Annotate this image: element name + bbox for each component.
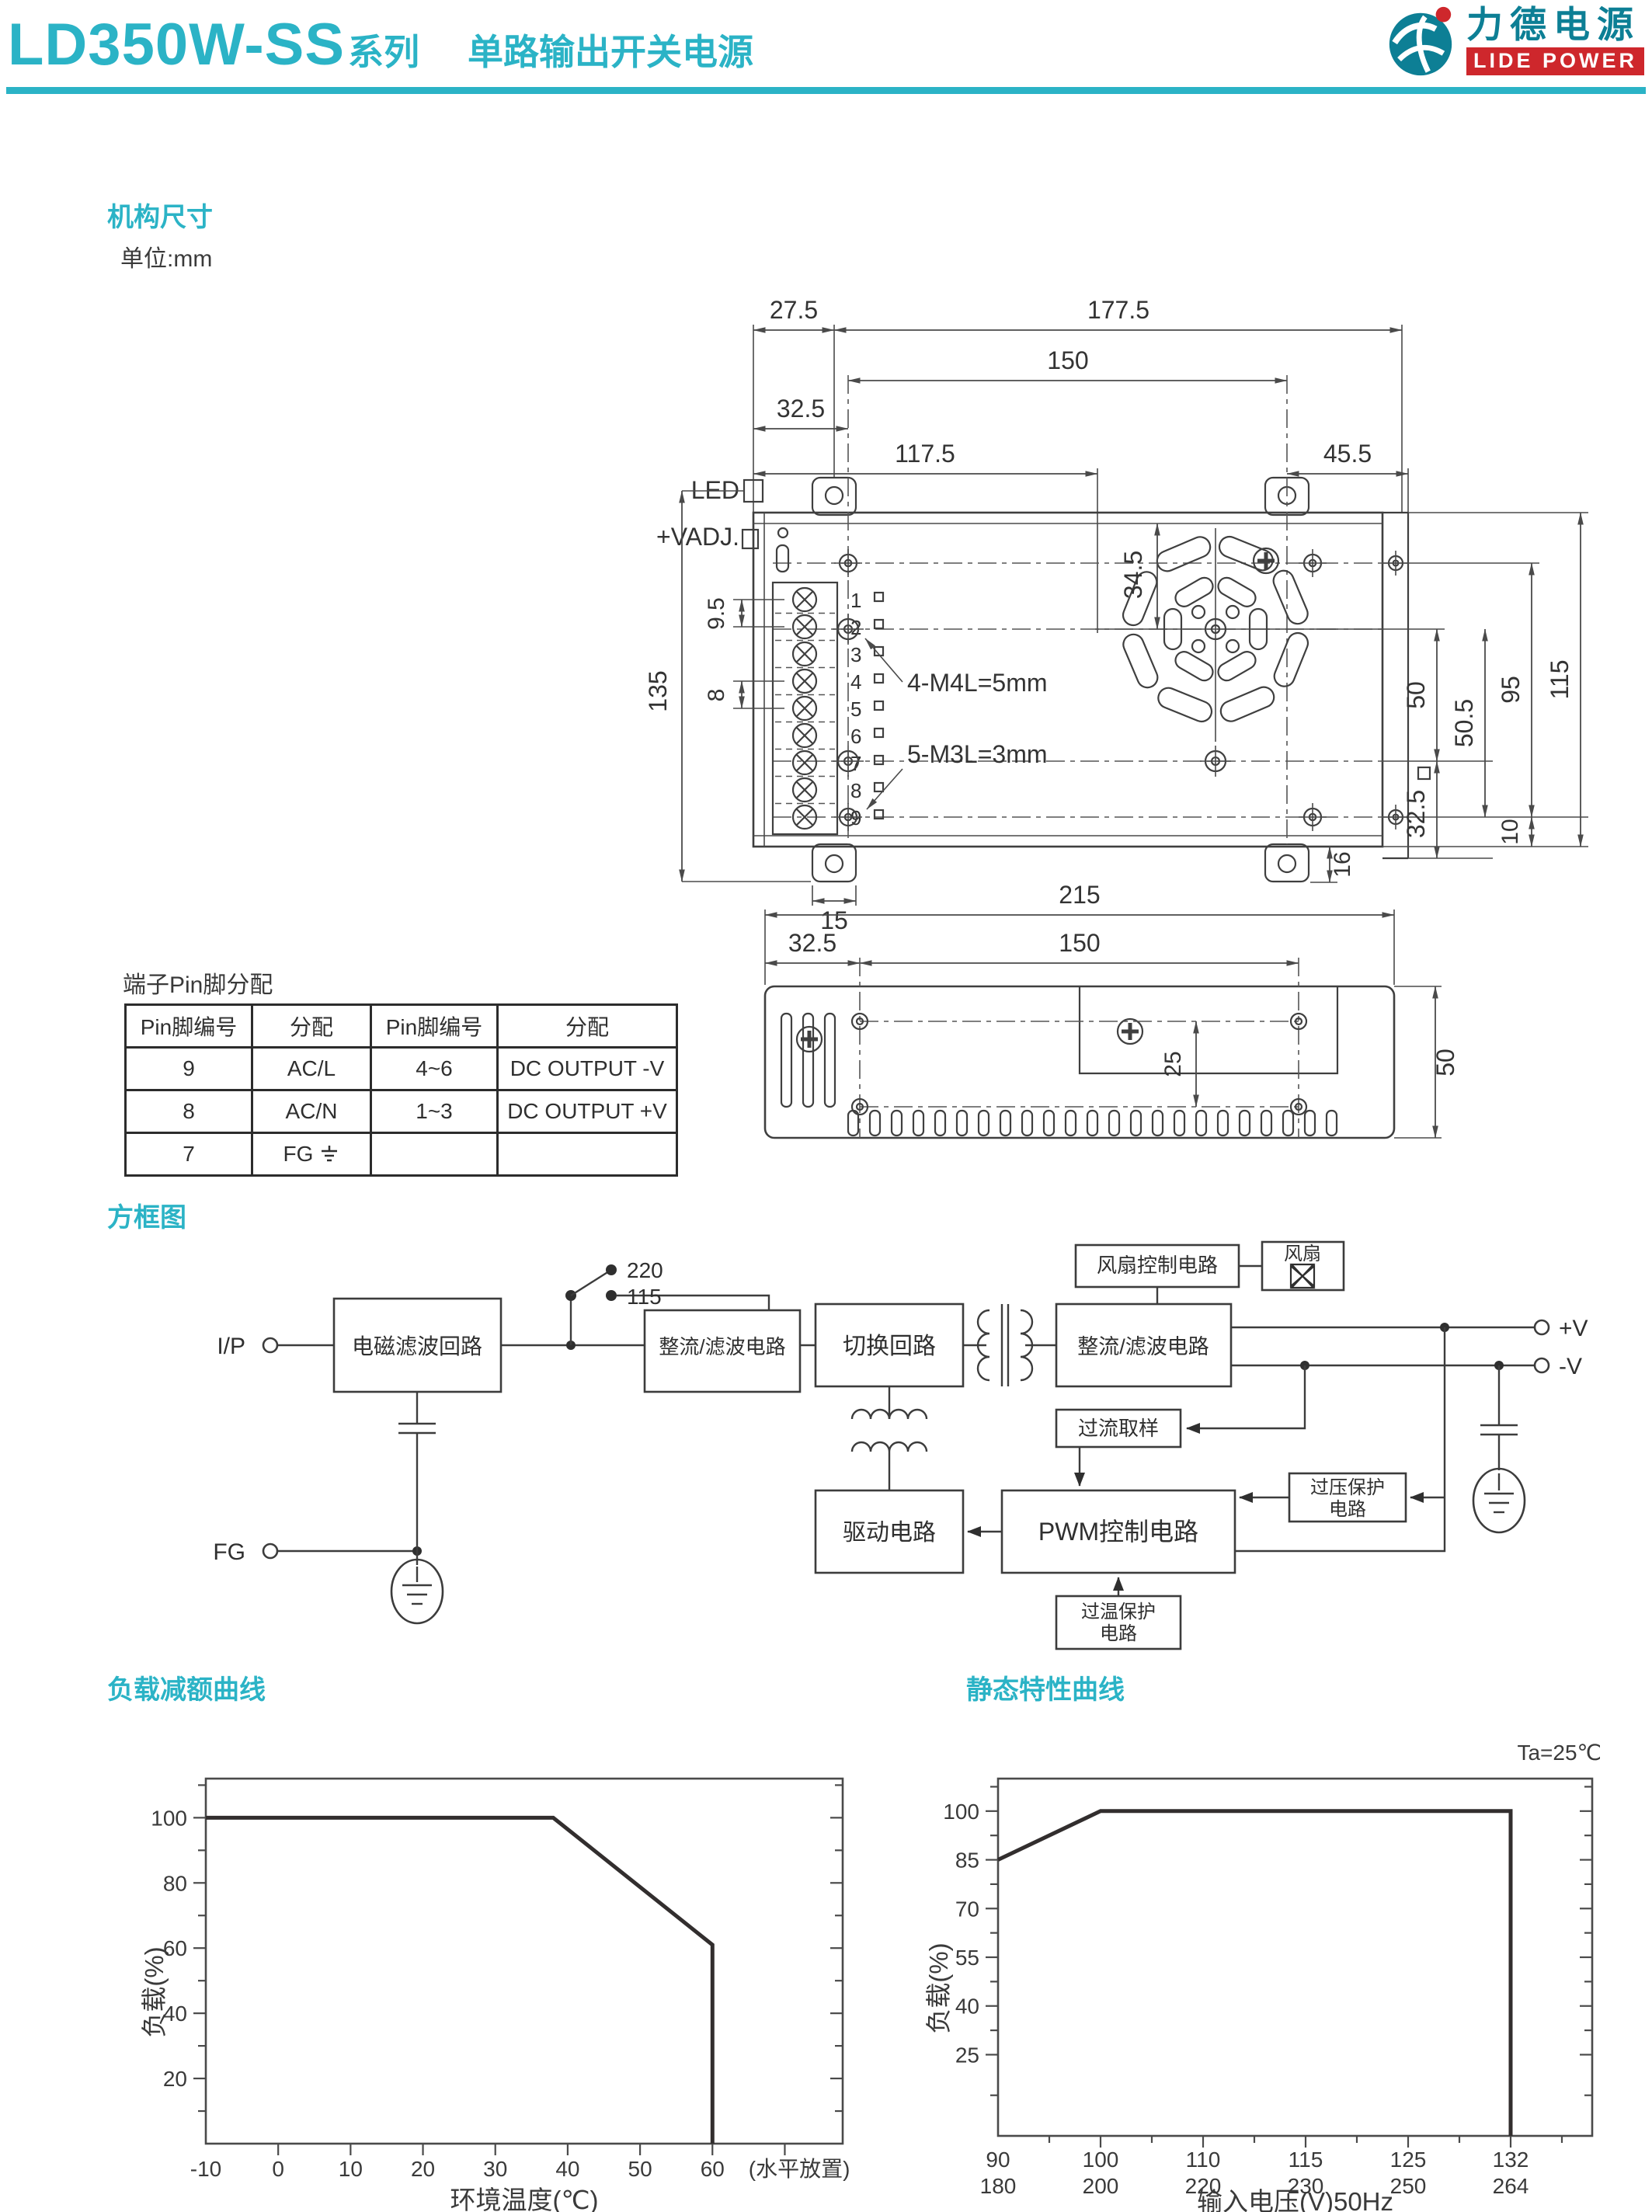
svg-text:60: 60 [701, 2157, 725, 2181]
m4-note: 4-M4L=5mm [907, 669, 1048, 697]
dim-135: 135 [644, 670, 672, 711]
dim-10: 10 [1497, 819, 1523, 844]
svg-text:1: 1 [850, 589, 861, 612]
cell: 7 [126, 1133, 252, 1176]
table-row: 9 AC/L 4~6 DC OUTPUT -V [126, 1048, 677, 1090]
input-terminal [263, 1338, 277, 1352]
dim-27-5: 27.5 [770, 296, 818, 324]
svg-text:70: 70 [955, 1897, 979, 1921]
bottom-vent-slots [848, 1111, 1337, 1136]
dim-45-5: 45.5 [1323, 440, 1372, 468]
switching-label: 切换回路 [843, 1334, 936, 1359]
datasheet-page: LD350W-SS 系列 单路输出开关电源 力德电源 LIDE POWER 机构… [0, 0, 1652, 2212]
svg-text:132: 132 [1493, 2148, 1529, 2172]
voltage-select-switch: 220 115 [565, 1258, 769, 1345]
cell: 4~6 [371, 1048, 498, 1090]
logo-english-name: LIDE POWER [1466, 47, 1644, 75]
svg-text:40: 40 [555, 2157, 579, 2181]
svg-text:5: 5 [850, 697, 861, 721]
svg-text:3: 3 [850, 643, 861, 666]
block-diagram: I/P 电磁滤波回路 220 115 整流/滤波电路 切换回路 [179, 1240, 1639, 1652]
header-assign-2: 分配 [498, 1005, 677, 1048]
ovp-label-1: 过压保护 [1310, 1477, 1385, 1498]
svg-text:40: 40 [955, 1995, 979, 2019]
svg-text:(水平放置): (水平放置) [749, 2157, 850, 2181]
svg-text:负载(%): 负载(%) [140, 1946, 169, 2037]
fg-label: FG [213, 1539, 245, 1565]
pwm-label: PWM控制电路 [1038, 1518, 1198, 1546]
header-pin-no: Pin脚编号 [126, 1005, 252, 1048]
vminus-label: -V [1559, 1354, 1582, 1379]
dim-32-5: 32.5 [777, 395, 825, 423]
vplus-label: +V [1559, 1316, 1588, 1341]
brand-logo: 力德电源 LIDE POWER [1382, 3, 1644, 79]
square-hole-symbol [1418, 767, 1430, 779]
logo-chinese-name: 力德电源 [1466, 7, 1640, 45]
fg-capacitor [398, 1392, 436, 1551]
svg-text:负载(%): 负载(%) [924, 1942, 953, 2033]
dim-16: 16 [1330, 851, 1355, 877]
section-title-static: 静态特性曲线 [966, 1668, 1125, 1706]
vadj-pot [743, 530, 758, 548]
earth-ground-icon [319, 1145, 339, 1163]
dim-25: 25 [1160, 1051, 1186, 1076]
cell: 9 [126, 1048, 252, 1090]
fan-label: 风扇 [1284, 1243, 1321, 1264]
led-label: LED [691, 476, 739, 504]
drive-label: 驱动电路 [843, 1520, 936, 1546]
svg-text:115: 115 [1289, 2148, 1323, 2172]
dim-32-5-square: 32.5 [1402, 790, 1430, 838]
drive-coils [852, 1386, 927, 1490]
cell: 1~3 [371, 1090, 498, 1133]
derating-curve-chart: 20406080100-100102030405060环境温度(℃)负载(%)(… [140, 1709, 878, 2212]
m3-note: 5-M3L=3mm [907, 740, 1048, 768]
svg-text:输入电压(V)50Hz: 输入电压(V)50Hz [1197, 2187, 1393, 2212]
unit-note: 单位:mm [120, 239, 212, 273]
dim-177-5: 177.5 [1087, 296, 1149, 324]
svg-text:55: 55 [955, 1946, 979, 1970]
transformer-symbol [963, 1304, 1056, 1386]
svg-text:20: 20 [163, 2067, 187, 2091]
pin-table-title: 端子Pin脚分配 [123, 965, 273, 1000]
dim-95: 95 [1497, 676, 1525, 704]
static-characteristic-chart: 2540557085100901801002001102201152301252… [924, 1709, 1639, 2212]
dim-9-5: 9.5 [704, 597, 729, 630]
rectifier2-label: 整流/滤波电路 [1077, 1335, 1209, 1358]
svg-text:264: 264 [1493, 2174, 1529, 2198]
dim-34-5: 34.5 [1119, 551, 1147, 599]
cell: AC/L [252, 1048, 371, 1090]
svg-text:250: 250 [1390, 2174, 1427, 2198]
cell: 8 [126, 1090, 252, 1133]
vadj-label: +VADJ. [656, 523, 739, 551]
otp-label-2: 电路 [1100, 1623, 1137, 1644]
input-label: I/P [217, 1334, 245, 1359]
fan-icon [1291, 1264, 1314, 1288]
svg-text:10: 10 [339, 2157, 363, 2181]
svg-text:8: 8 [850, 779, 861, 802]
pin-assignment-table: Pin脚编号 分配 Pin脚编号 分配 9 AC/L 4~6 DC OUTPUT… [124, 1003, 678, 1177]
page-title: LD350W-SS 系列 单路输出开关电源 [8, 11, 753, 78]
cell: DC OUTPUT -V [498, 1048, 677, 1090]
svg-text:25: 25 [955, 2043, 979, 2067]
dim-215: 215 [1059, 881, 1100, 909]
svg-text:0: 0 [272, 2157, 284, 2181]
svg-text:-10: -10 [190, 2157, 221, 2181]
fg-ground-icon [391, 1551, 443, 1623]
svg-text:20: 20 [411, 2157, 435, 2181]
fg-terminal [263, 1544, 277, 1558]
terminal-block: 123456789 [773, 583, 883, 834]
switch-220-label: 220 [627, 1258, 663, 1282]
svg-text:110: 110 [1186, 2148, 1221, 2172]
table-row: 8 AC/N 1~3 DC OUTPUT +V [126, 1090, 677, 1133]
otp-label-1: 过温保护 [1081, 1602, 1156, 1622]
table-header-row: Pin脚编号 分配 Pin脚编号 分配 [126, 1005, 677, 1048]
fg-label: FG [283, 1142, 314, 1167]
svg-text:环境温度(℃): 环境温度(℃) [450, 2186, 598, 2212]
cell [498, 1133, 677, 1176]
series-suffix: 系列 [348, 24, 419, 75]
switch-115-label: 115 [627, 1285, 662, 1309]
dim-side-150: 150 [1059, 929, 1100, 957]
svg-text:Ta=25℃: Ta=25℃ [1517, 1741, 1602, 1765]
svg-text:85: 85 [955, 1849, 979, 1873]
dim-117-5: 117.5 [895, 440, 955, 468]
header-pin-no-2: Pin脚编号 [371, 1005, 498, 1048]
output-capacitor [1480, 1365, 1518, 1470]
dim-side-32-5: 32.5 [788, 929, 836, 957]
side-view-drawing: 215 32.5 150 [765, 881, 1459, 1138]
svg-text:200: 200 [1083, 2174, 1119, 2198]
dim-50-5: 50.5 [1450, 699, 1478, 747]
dim-side-50: 50 [1431, 1049, 1459, 1076]
cell: AC/N [252, 1090, 371, 1133]
svg-text:30: 30 [483, 2157, 507, 2181]
terminal-screws: 123456789 [775, 588, 883, 829]
svg-text:80: 80 [163, 1871, 187, 1895]
svg-text:6: 6 [850, 725, 861, 748]
header-divider [6, 87, 1646, 94]
dim-115: 115 [1546, 659, 1574, 699]
svg-text:100: 100 [151, 1806, 187, 1830]
svg-text:100: 100 [1083, 2148, 1119, 2172]
brand-logo-icon [1382, 3, 1459, 79]
rectifier1-label: 整流/滤波电路 [659, 1335, 785, 1358]
svg-text:4: 4 [850, 670, 861, 694]
dim-50: 50 [1402, 681, 1430, 709]
cell-fg: FG [252, 1133, 371, 1176]
dim-150: 150 [1047, 346, 1088, 374]
vminus-terminal [1535, 1358, 1549, 1372]
svg-text:125: 125 [1390, 2148, 1427, 2172]
series-name: LD350W-SS [8, 11, 345, 78]
svg-text:180: 180 [980, 2174, 1017, 2198]
fan-control-label: 风扇控制电路 [1097, 1254, 1218, 1277]
svg-text:100: 100 [943, 1800, 979, 1824]
top-view-drawing: 27.5 177.5 150 32.5 117.5 45.5 [644, 296, 1588, 934]
dim-8: 8 [704, 689, 729, 702]
overcurrent-label: 过流取样 [1078, 1417, 1159, 1440]
ovp-label-2: 电路 [1329, 1499, 1366, 1520]
cell [371, 1133, 498, 1176]
side-phillips-screws [797, 1019, 1142, 1052]
section-title-block-diagram: 方框图 [107, 1196, 186, 1234]
output-ground-icon [1473, 1469, 1525, 1532]
logo-red-dot [1436, 7, 1452, 23]
page-subtitle: 单路输出开关电源 [468, 24, 753, 75]
vplus-terminal [1535, 1320, 1549, 1334]
svg-text:90: 90 [986, 2148, 1010, 2172]
svg-text:50: 50 [628, 2157, 652, 2181]
section-title-mechanical: 机构尺寸 [107, 196, 213, 234]
header-assign: 分配 [252, 1005, 371, 1048]
table-row: 7 FG [126, 1133, 677, 1176]
section-title-derating: 负载减额曲线 [107, 1668, 266, 1706]
cell: DC OUTPUT +V [498, 1090, 677, 1133]
emi-filter-label: 电磁滤波回路 [352, 1334, 482, 1358]
